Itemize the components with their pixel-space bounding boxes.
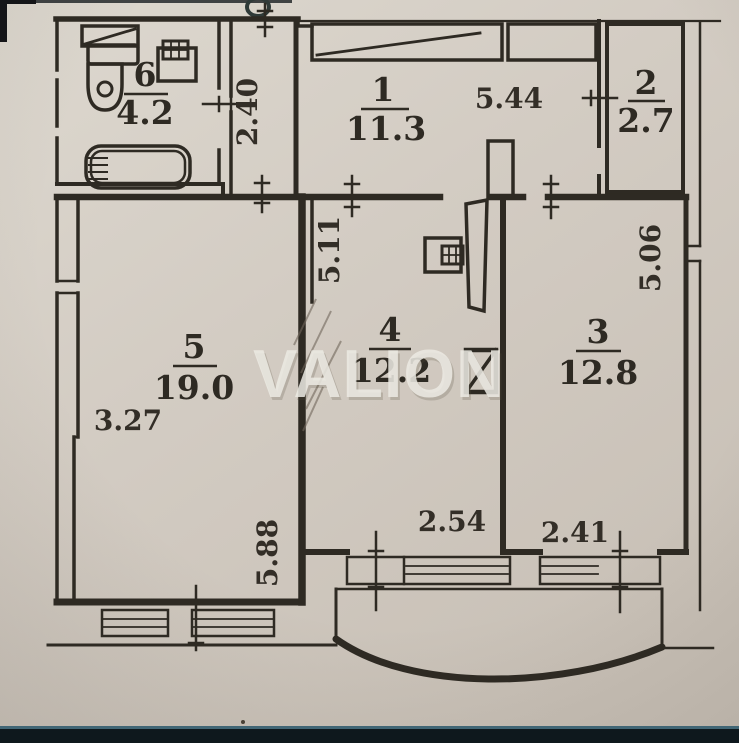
room-3-area: 12.8 [558, 353, 638, 392]
dim-room3-window: 2.41 [541, 516, 609, 549]
room-3-number: 3 [587, 312, 610, 351]
dim-room5-length: 5.88 [251, 519, 284, 587]
dim-room5-width: 3.27 [94, 404, 162, 437]
dim-room3-length: 5.06 [634, 224, 667, 292]
room-6-area: 4.2 [116, 93, 173, 132]
room-6-number: 6 [134, 55, 157, 94]
floorplan-drawing: 6 4.2 1 11.3 2 2.7 5 19.0 4 12.2 3 12.8 … [0, 0, 739, 743]
room-5-number: 5 [183, 327, 206, 366]
room-5-area: 19.0 [154, 368, 234, 407]
dim-corridor: 2.40 [231, 78, 264, 146]
room-2-number: 2 [635, 63, 658, 102]
watermark-text: VALION [253, 336, 505, 412]
floorplan-photo: 6 4.2 1 11.3 2 2.7 5 19.0 4 12.2 3 12.8 … [0, 0, 739, 743]
room-2-area: 2.7 [617, 101, 674, 140]
room-1-number: 1 [372, 70, 395, 109]
dim-room4-length: 5.11 [313, 216, 346, 284]
dim-room4-window: 2.54 [418, 505, 486, 538]
dim-room1-width: 5.44 [475, 82, 543, 115]
photo-bottom-band-highlight [0, 726, 739, 729]
room-1-area: 11.3 [346, 109, 426, 148]
paper-speck [241, 720, 245, 724]
